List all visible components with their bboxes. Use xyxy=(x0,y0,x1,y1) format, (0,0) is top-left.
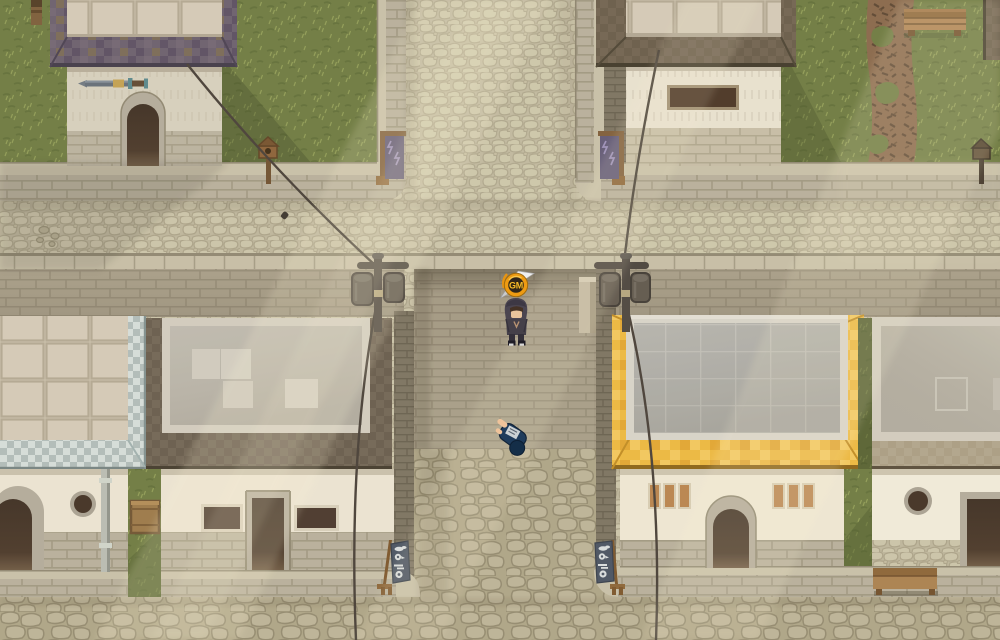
svg-text:GM: GM xyxy=(509,281,523,291)
